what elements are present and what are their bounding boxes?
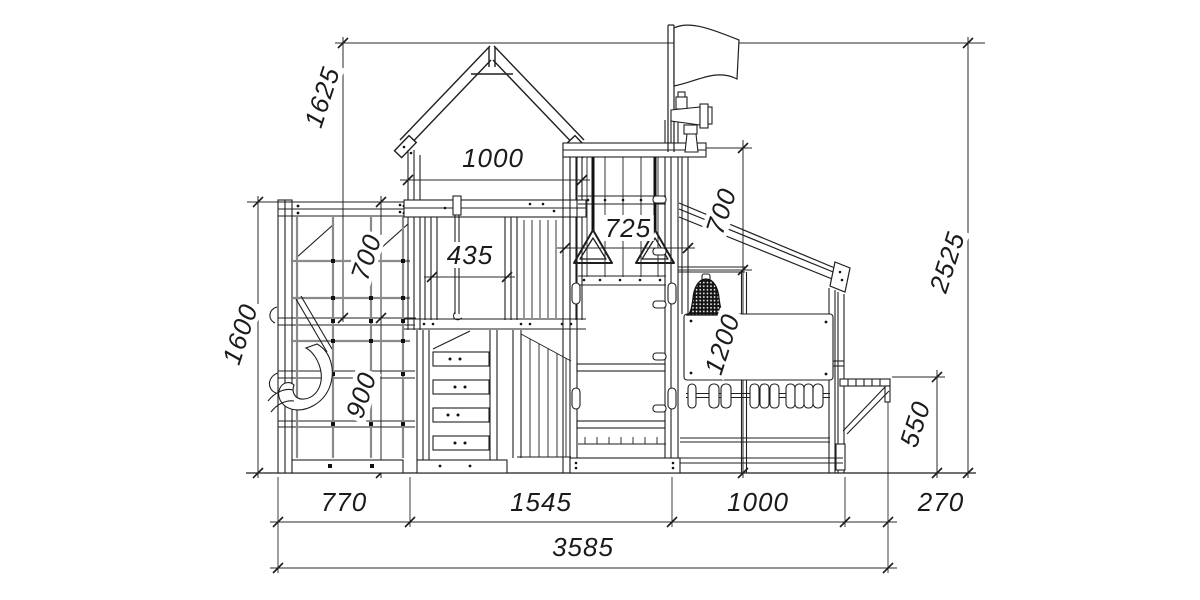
left-climbing-module (268, 200, 415, 473)
grip-handle-icon (572, 283, 580, 304)
grip-handle-icon (668, 388, 676, 409)
dim-label-base-left: 770 (318, 489, 370, 515)
dim-label-bench-overhang: 270 (915, 489, 967, 515)
sandbox-edge (578, 437, 666, 444)
bench-icon (840, 379, 890, 434)
gym-rings-icon (574, 157, 674, 263)
flag-icon (668, 25, 739, 152)
balustrade-slats (524, 220, 563, 318)
hook-icon (269, 373, 278, 393)
dim-label-overall-width: 3585 (549, 534, 617, 560)
dim-label-base-right: 1000 (724, 489, 792, 515)
dim-label-tower-opening: 435 (444, 242, 496, 268)
rings-module (563, 120, 706, 473)
dim-label-rings-width: 725 (602, 215, 654, 241)
gable-roof (394, 46, 589, 158)
grip-handle-icon (668, 283, 676, 304)
climbing-wall (433, 331, 489, 450)
playground-elevation-drawing (0, 0, 1200, 600)
counting-beads-icon (686, 384, 830, 408)
technical-drawing-canvas: 1625 1000 435 725 700 2525 1600 700 900 … (0, 0, 1200, 600)
grip-handle-icon (572, 388, 580, 409)
dim-label-roof-width: 1000 (459, 145, 527, 171)
right-play-module (678, 157, 845, 473)
hook-icon (270, 307, 277, 323)
dim-label-base-middle: 1545 (507, 489, 575, 515)
